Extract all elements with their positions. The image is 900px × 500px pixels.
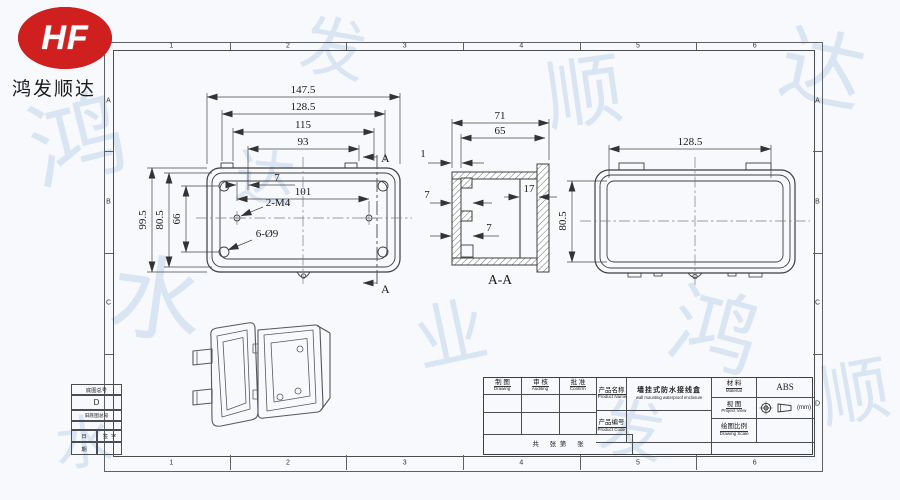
titleblock-product-name-value: 墙挂式防水接线盒 wall mounting waterproof enclos… [627, 378, 711, 410]
label-2-m4: 2-M4 [266, 197, 291, 209]
zone-col-bottom-6: 6 [753, 460, 757, 467]
zone-col-top-1: 1 [169, 43, 173, 50]
date-cell-1: 日 [71, 430, 97, 442]
zone-divider [580, 455, 581, 470]
zone-divider [104, 151, 113, 152]
zone-col-bottom-5: 5 [636, 460, 640, 467]
zone-divider [813, 354, 822, 355]
dim-1: 1 [420, 148, 426, 160]
titleblock-confirm: 批 准 Confirm [560, 378, 596, 394]
titleblock-material-value: ABS [757, 378, 813, 397]
dim-80-5-front: 80.5 [154, 210, 166, 230]
title-block: 制 图 Drawing 审 核 Auditing 批 准 Confirm 产品名… [483, 377, 813, 455]
drawing-sheet: 发水达顺鸿业水达顺发鸿 { "company": { "logo_text": … [0, 0, 900, 500]
zone-row-left-C: C [106, 300, 111, 307]
section-letter-top: A [381, 151, 390, 165]
zone-divider [813, 151, 822, 152]
titleblock-projection-symbol: (mm) [757, 398, 813, 418]
zone-col-top-3: 3 [403, 43, 407, 50]
dim-7-lower: 7 [486, 222, 492, 234]
dim-65: 65 [495, 125, 507, 137]
zone-d-cell: D [71, 395, 122, 410]
zone-divider [230, 455, 231, 470]
section-label: A-A [488, 272, 512, 287]
zone-row-right-C: C [815, 300, 820, 307]
back-view-centerlines [580, 157, 810, 286]
dim-66: 66 [171, 213, 183, 225]
zone-divider [230, 42, 231, 50]
zone-col-bottom-1: 1 [169, 460, 173, 467]
dim-80-5-back: 80.5 [557, 211, 569, 231]
sign-cell: 签 字 [97, 430, 122, 442]
unit-label: (mm) [797, 405, 811, 412]
dim-128-5-front: 128.5 [291, 101, 316, 113]
zone-col-bottom-2: 2 [286, 460, 290, 467]
titleblock-auditing: 审 核 Auditing [522, 378, 559, 394]
base-drawing-no-cell: 底图总号 [71, 384, 122, 395]
front-view [207, 163, 400, 278]
dim-115: 115 [295, 119, 312, 131]
dim-99-5: 99.5 [137, 210, 149, 230]
zone-divider [580, 42, 581, 50]
dim-93: 93 [298, 136, 310, 148]
zone-col-bottom-4: 4 [519, 460, 523, 467]
zone-divider [463, 42, 464, 50]
zone-col-bottom-3: 3 [403, 460, 407, 467]
isometric-view [193, 323, 330, 426]
zone-divider [104, 354, 113, 355]
zone-divider [696, 455, 697, 470]
front-view-dimensions [147, 93, 400, 283]
dim-7-front: 7 [274, 172, 280, 184]
zone-row-left-A: A [106, 97, 111, 104]
section-view [452, 164, 549, 272]
dim-17: 17 [524, 183, 536, 195]
corner-spacer-cell [71, 421, 122, 430]
back-view-dimensions [567, 145, 771, 262]
zone-col-top-6: 6 [753, 43, 757, 50]
zone-row-right-A: A [815, 97, 820, 104]
zone-divider [696, 42, 697, 50]
label-6-dia9: 6-Ø9 [256, 228, 279, 240]
zone-divider [346, 42, 347, 50]
zone-col-top-4: 4 [519, 43, 523, 50]
zone-col-top-2: 2 [286, 43, 290, 50]
titleblock-material-label: 材 料 Material [712, 378, 756, 397]
titleblock-drawing: 制 图 Drawing [484, 378, 521, 394]
first-angle-projection-icon [759, 401, 795, 415]
zone-row-right-B: B [815, 198, 820, 205]
dim-101: 101 [295, 186, 312, 198]
zone-divider [463, 455, 464, 470]
zone-row-left-B: B [106, 198, 111, 205]
dim-147-5: 147.5 [291, 84, 316, 96]
old-base-drawing-no-cell: 旧底图总号 [71, 410, 122, 421]
dim-7-upper: 7 [424, 189, 430, 201]
zone-col-top-5: 5 [636, 43, 640, 50]
dim-71: 71 [495, 110, 506, 122]
corner-block: 底图总号 D 旧底图总号 日 期 签 字 [71, 384, 122, 455]
front-view-centerlines [196, 155, 412, 285]
date-cell-2: 期 [71, 442, 97, 455]
titleblock-product-name-label: 产品名称 Product Name [597, 378, 626, 410]
zone-row-right-D: D [815, 401, 820, 408]
titleblock-scale-label: 绘图比例 Drawing Scale [712, 419, 756, 442]
zone-divider [104, 253, 113, 254]
zone-divider [813, 253, 822, 254]
titleblock-sheet-row: 共 张 第 张 [484, 435, 632, 454]
dim-128-5-back: 128.5 [678, 136, 703, 148]
zone-divider [346, 455, 347, 470]
sign-cell-empty [97, 442, 122, 455]
titleblock-view-label: 视 图 Project View [712, 398, 756, 418]
section-letter-bottom: A [381, 282, 390, 296]
